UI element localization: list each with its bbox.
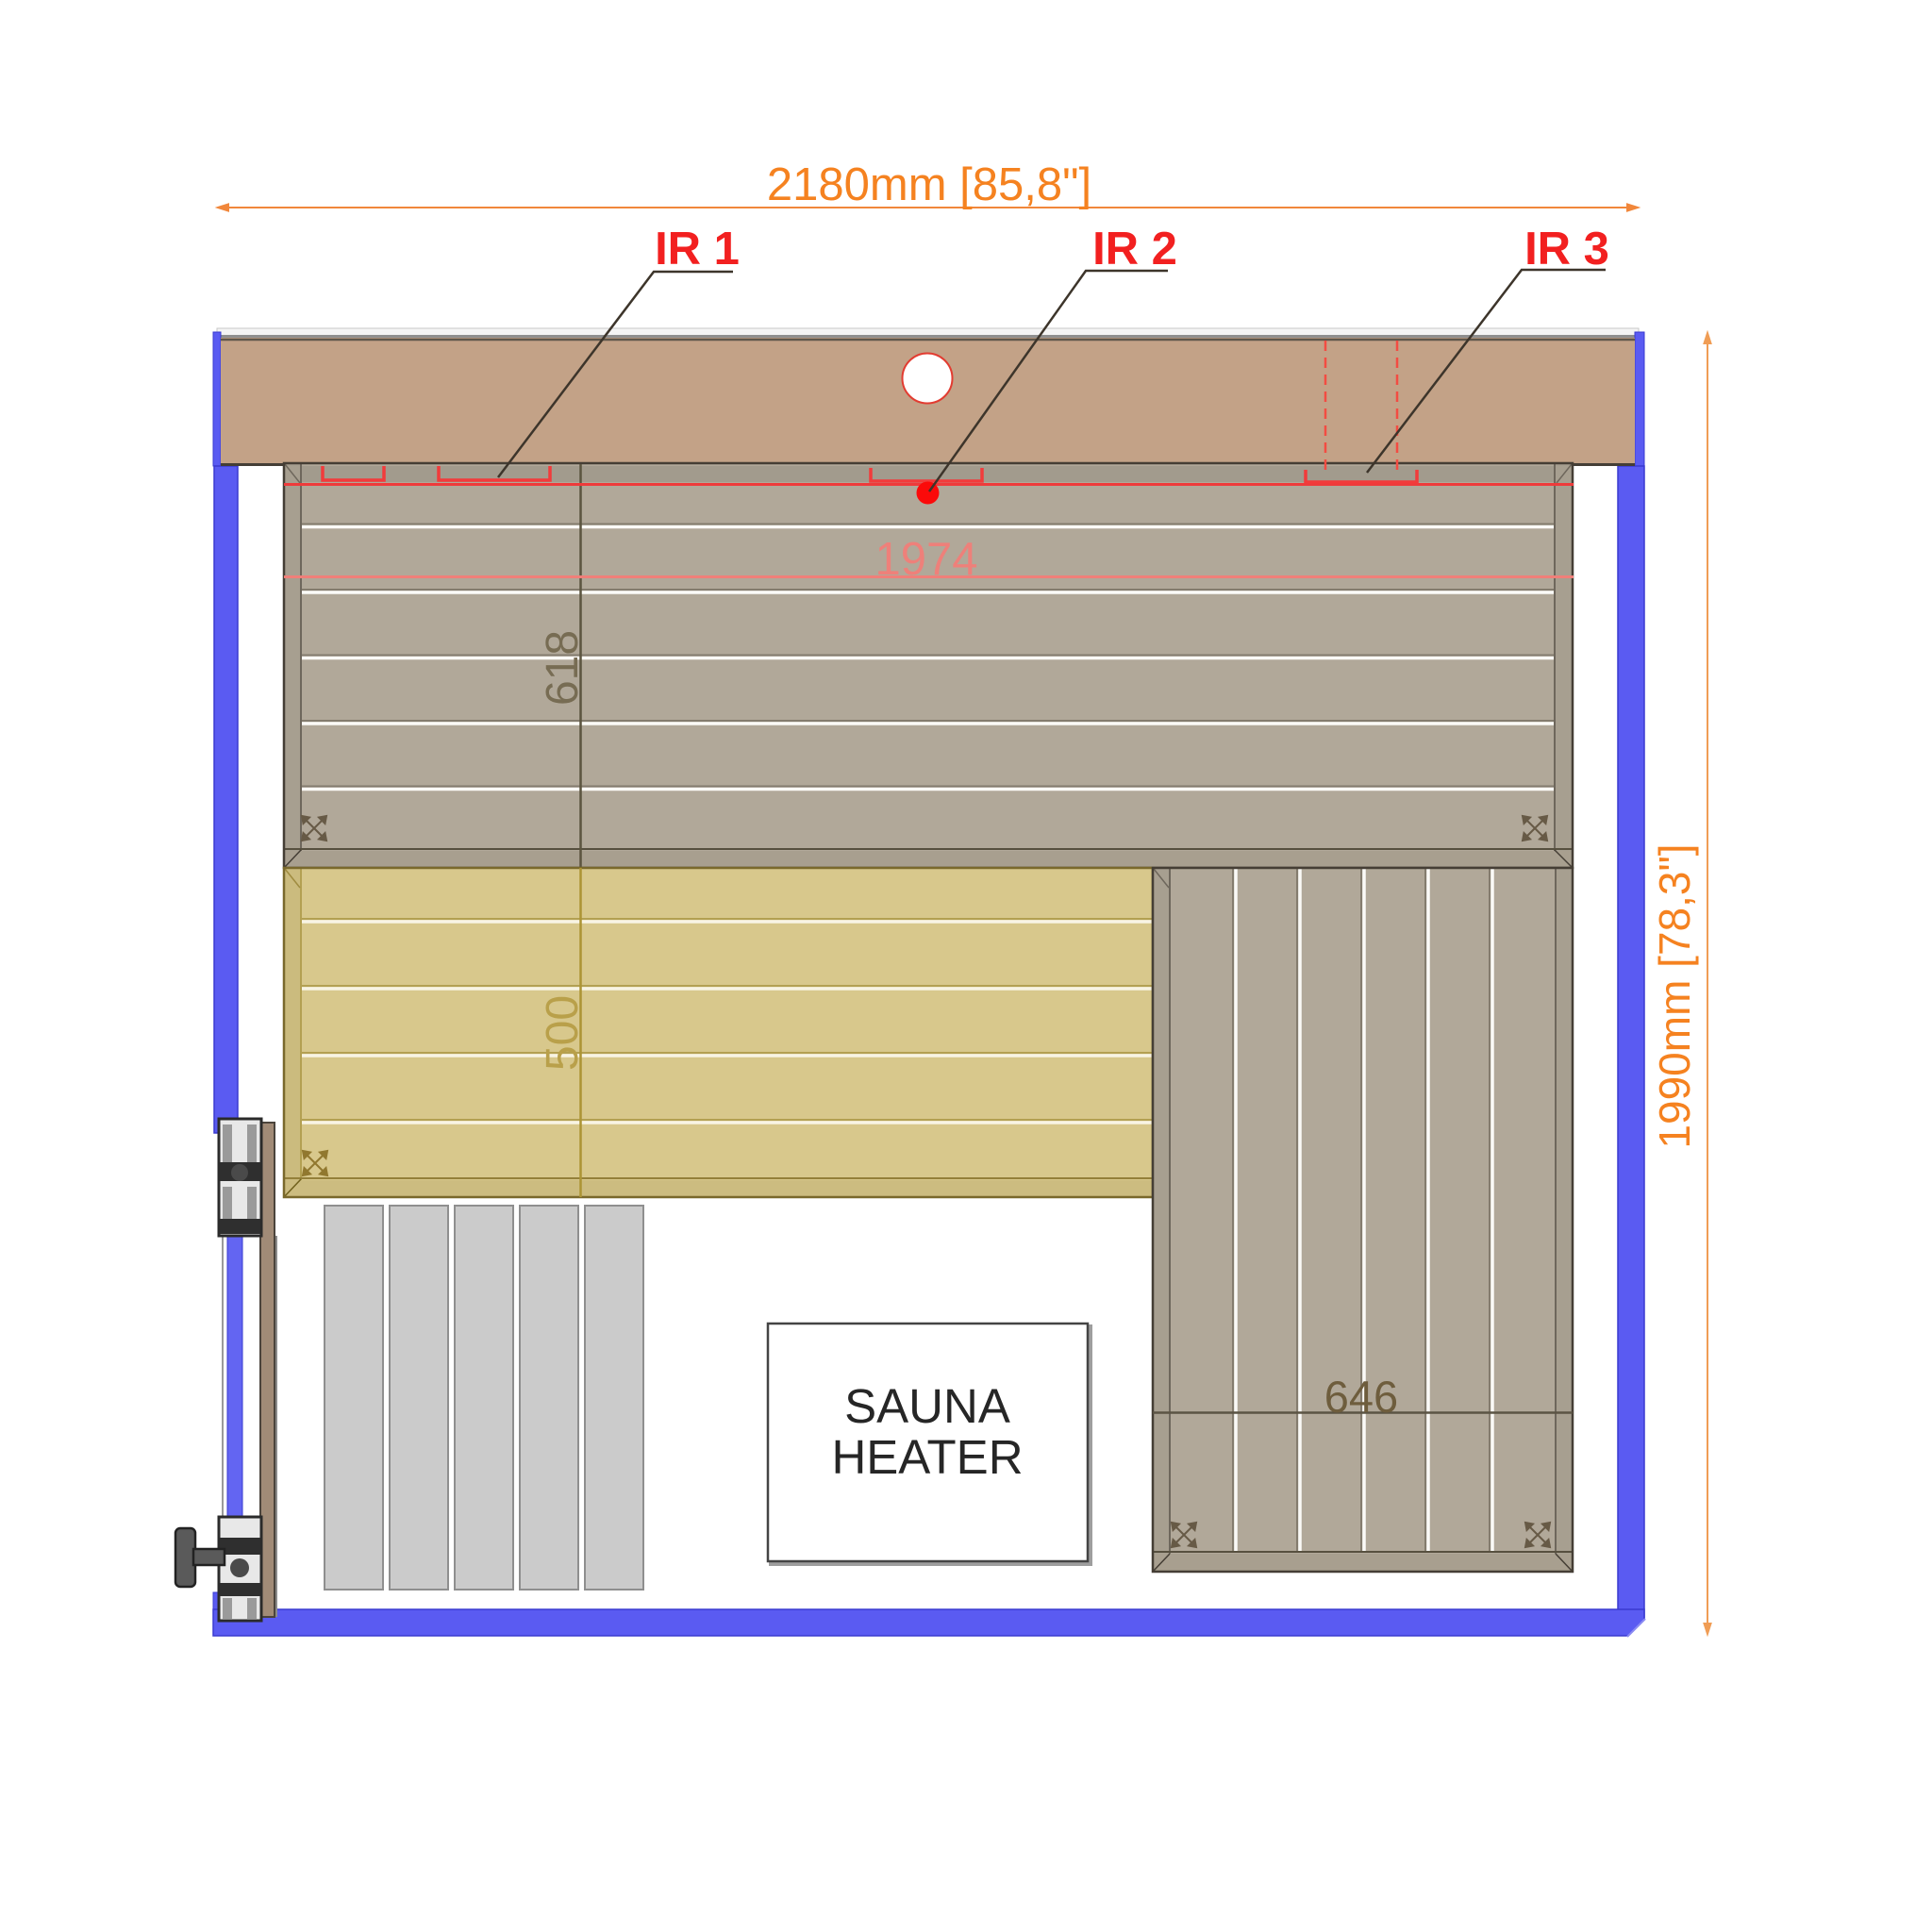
svg-text:HEATER: HEATER [831, 1430, 1023, 1484]
svg-text:IR 3: IR 3 [1524, 224, 1609, 275]
svg-text:646: 646 [1324, 1372, 1398, 1422]
svg-text:SAUNA: SAUNA [844, 1379, 1010, 1433]
svg-text:2180mm [85,8"]: 2180mm [85,8"] [767, 159, 1091, 210]
svg-text:1990mm [78,3"]: 1990mm [78,3"] [1650, 843, 1699, 1148]
svg-text:618: 618 [538, 630, 588, 706]
svg-text:IR 2: IR 2 [1092, 224, 1177, 275]
svg-text:IR 1: IR 1 [655, 224, 740, 275]
svg-text:1974: 1974 [874, 534, 977, 585]
svg-text:500: 500 [538, 995, 588, 1071]
